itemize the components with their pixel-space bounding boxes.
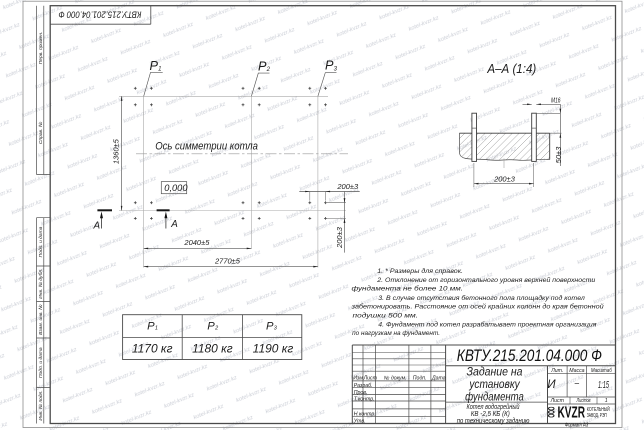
svg-text:М16: М16: [551, 97, 561, 104]
svg-text:Инв. № дубл.: Инв. № дубл.: [38, 269, 44, 299]
svg-text:Подп. и дата: Подп. и дата: [38, 347, 44, 378]
svg-text:Листов: Листов: [576, 398, 591, 404]
svg-text:2. Отклонение от горизонтальн: 2. Отклонение от горизонтального уровня …: [376, 276, 595, 284]
svg-text:Перв. примен.: Перв. примен.: [38, 32, 44, 65]
svg-text:Масштаб: Масштаб: [591, 368, 613, 374]
svg-text:200±3: 200±3: [335, 226, 344, 249]
svg-text:2040±5: 2040±5: [183, 238, 210, 247]
svg-text:Подп. и дата: Подп. и дата: [38, 226, 44, 257]
svg-text:200±3: 200±3: [336, 182, 359, 191]
svg-text:Лист: Лист: [363, 375, 378, 381]
svg-text:1190 кг: 1190 кг: [253, 344, 294, 356]
svg-text:№ докум.: № докум.: [384, 375, 407, 381]
svg-text:P: P: [207, 320, 215, 332]
svg-text:Лит.: Лит.: [550, 368, 563, 374]
svg-text:2: 2: [266, 67, 271, 73]
svg-text:Разраб.: Разраб.: [354, 383, 373, 389]
svg-text:3. В случае отсутствия бетонн: 3. В случае отсутствия бетонного пола пл…: [378, 294, 585, 302]
svg-text:50±3: 50±3: [554, 146, 563, 163]
svg-text:Т.контр.: Т.контр.: [354, 396, 375, 402]
svg-text:200±3: 200±3: [493, 174, 516, 183]
svg-text:Задание на: Задание на: [467, 366, 523, 378]
svg-text:КВТУ.215.201.04.000 Ф: КВТУ.215.201.04.000 Ф: [457, 346, 602, 365]
svg-text:2770±5: 2770±5: [214, 256, 241, 265]
svg-text:KVZR: KVZR: [558, 405, 586, 422]
svg-text:Формат А3: Формат А3: [565, 423, 589, 429]
svg-text:Инв. № подл.: Инв. № подл.: [38, 390, 44, 420]
svg-text:КОТЕЛЬНЫЙ: КОТЕЛЬНЫЙ: [587, 405, 610, 413]
svg-text:P: P: [266, 320, 274, 332]
svg-text:КВТУ.215.201.04.000 Ф: КВТУ.215.201.04.000 Ф: [59, 10, 142, 20]
svg-text:по нагрузкам на фундамент.: по нагрузкам на фундамент.: [352, 329, 440, 337]
svg-text:1: 1: [605, 398, 608, 404]
svg-text:Ось симметрии котла: Ось симметрии котла: [155, 141, 258, 153]
svg-text:установку: установку: [468, 379, 520, 391]
svg-text:1180 кг: 1180 кг: [192, 344, 233, 356]
svg-text:A: A: [170, 219, 178, 230]
svg-text:Дата: Дата: [431, 375, 446, 381]
svg-text:1. * Размеры для справок.: 1. * Размеры для справок.: [377, 267, 463, 275]
svg-text:A: A: [93, 220, 101, 231]
svg-text:И: И: [547, 379, 556, 391]
svg-text:Взам. инв. №: Взам. инв. №: [38, 305, 44, 335]
svg-text:Масса: Масса: [569, 368, 584, 374]
svg-text:ООО: ООО: [547, 406, 557, 417]
svg-text:1: 1: [158, 66, 161, 72]
svg-text:–: –: [574, 379, 580, 388]
svg-text:А–А (1:4): А–А (1:4): [486, 61, 536, 76]
svg-text:0,000: 0,000: [164, 183, 188, 194]
svg-text:4. Фундамент под котел разраб: 4. Фундамент под котел разрабатывает про…: [378, 321, 596, 329]
svg-text:1:15: 1:15: [598, 380, 609, 391]
svg-text:Утв.: Утв.: [354, 419, 366, 425]
svg-text:P: P: [147, 320, 155, 332]
svg-text:подушки 500 мм.: подушки 500 мм.: [353, 311, 419, 319]
svg-text:ЗАВОД, РЭП: ЗАВОД, РЭП: [587, 413, 607, 419]
svg-text:фундамента не более 10 мм.: фундамента не более 10 мм.: [352, 285, 464, 293]
svg-text:Изм.: Изм.: [353, 375, 364, 381]
svg-text:2: 2: [214, 326, 218, 332]
svg-text:1170 кг: 1170 кг: [132, 344, 173, 356]
svg-text:Подп.: Подп.: [413, 375, 427, 381]
svg-text:1: 1: [155, 326, 158, 332]
svg-text:Справ. №: Справ. №: [38, 122, 44, 144]
svg-text:Лист: Лист: [550, 398, 565, 404]
svg-text:Пров.: Пров.: [354, 390, 368, 396]
svg-text:1360±5: 1360±5: [111, 138, 120, 164]
svg-text:Н.контр.: Н.контр.: [354, 412, 376, 418]
svg-text:по техническому заданию: по техническому заданию: [457, 416, 530, 425]
svg-text:забетонировать. Расстояние от: забетонировать. Расстояние от осей крайн…: [351, 303, 604, 311]
